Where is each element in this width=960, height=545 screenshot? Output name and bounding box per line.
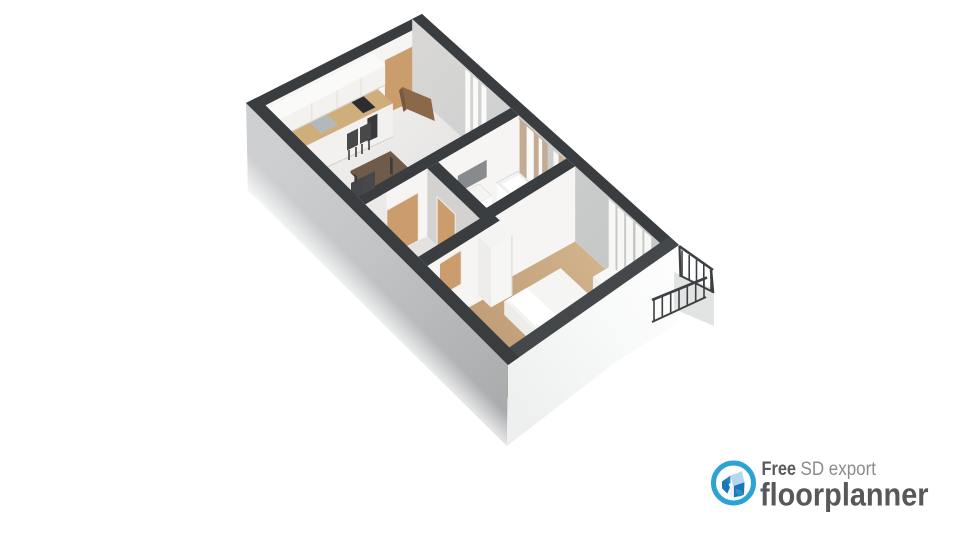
svg-text:floorplanner: floorplanner xyxy=(760,477,929,513)
